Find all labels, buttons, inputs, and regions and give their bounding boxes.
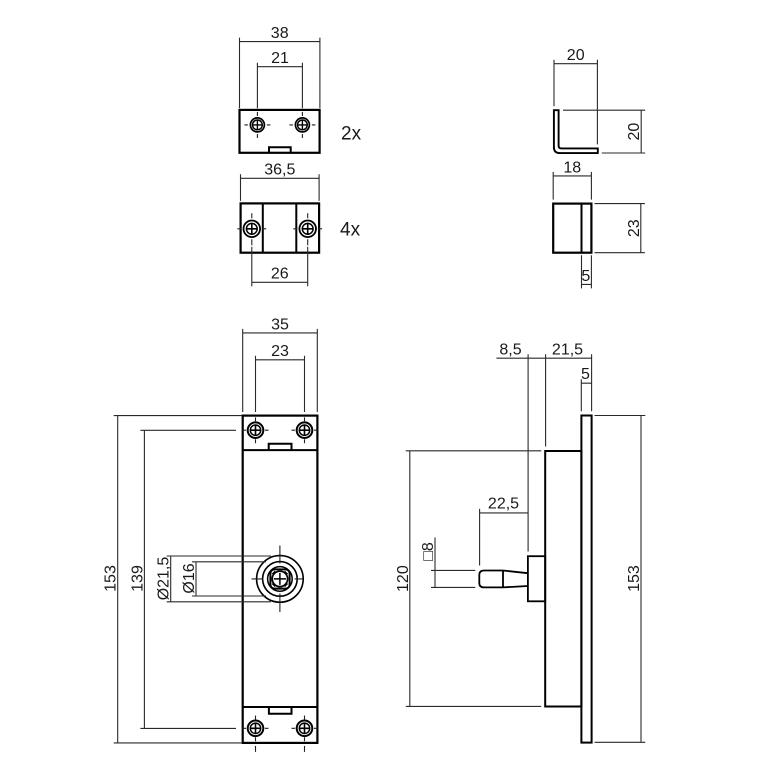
- svg-text:8,5: 8,5: [499, 342, 521, 359]
- svg-text:139: 139: [129, 565, 146, 592]
- svg-text:18: 18: [563, 159, 581, 176]
- svg-text:21: 21: [271, 50, 289, 67]
- svg-text:□8: □8: [420, 542, 437, 561]
- svg-text:20: 20: [626, 123, 643, 141]
- svg-text:26: 26: [271, 266, 289, 283]
- svg-text:Ø21,5: Ø21,5: [156, 557, 173, 601]
- svg-text:20: 20: [567, 47, 585, 64]
- svg-text:Ø16: Ø16: [181, 563, 198, 593]
- svg-text:5: 5: [581, 366, 590, 383]
- svg-text:22,5: 22,5: [488, 496, 519, 513]
- svg-text:21,5: 21,5: [552, 342, 583, 359]
- svg-text:35: 35: [271, 316, 289, 333]
- svg-text:4x: 4x: [340, 220, 361, 241]
- svg-text:36,5: 36,5: [264, 162, 295, 179]
- svg-text:2x: 2x: [341, 124, 362, 145]
- svg-text:5: 5: [581, 268, 590, 285]
- svg-text:153: 153: [103, 565, 120, 592]
- svg-text:153: 153: [626, 565, 643, 592]
- svg-text:23: 23: [626, 219, 643, 237]
- svg-text:120: 120: [395, 565, 412, 592]
- svg-text:38: 38: [271, 25, 289, 42]
- svg-text:23: 23: [271, 343, 289, 360]
